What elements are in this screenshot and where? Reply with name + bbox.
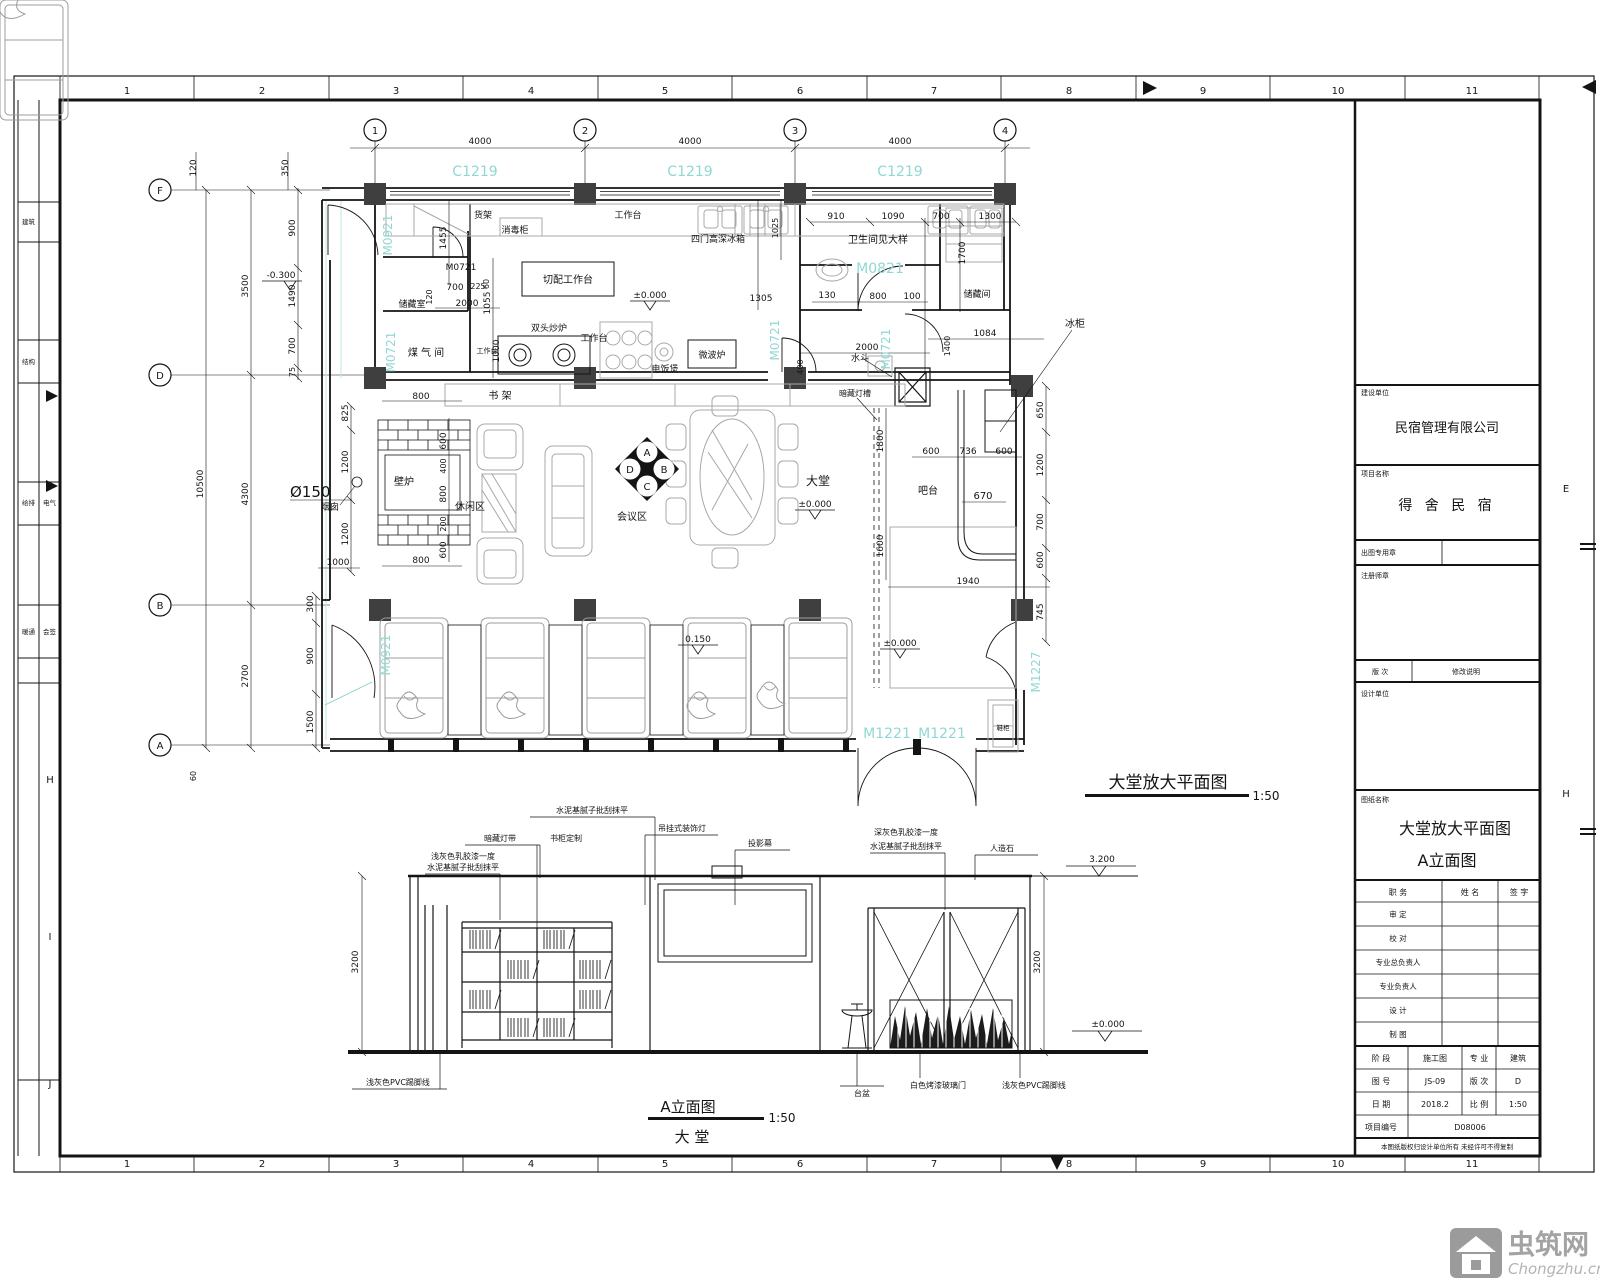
dim: 4000 — [679, 137, 702, 147]
label-rice-cooker: 电饭煲 — [651, 363, 678, 375]
dim: 1455 — [439, 227, 449, 250]
grid-col-2: 2 — [582, 126, 588, 137]
ruler-top-5: 5 — [662, 86, 668, 97]
tb-meta: 版 次 — [1470, 1076, 1489, 1086]
margin-letter: H — [46, 775, 54, 786]
dim: 2000 — [456, 299, 479, 309]
ruler-top-7: 7 — [931, 86, 937, 97]
dim: 1200 — [1036, 453, 1046, 476]
plan-columns — [364, 183, 1033, 621]
label-sink: 水斗 — [851, 352, 869, 364]
ruler-top-4: 4 — [528, 86, 534, 97]
dim: 1025 — [771, 218, 780, 238]
label-cabinet: 鞋柜 — [997, 723, 1011, 732]
ruler-top-9: 9 — [1200, 86, 1206, 97]
tb-meta: 施工图 — [1423, 1053, 1447, 1063]
dim: 1500 — [306, 710, 316, 733]
ruler-bot-11: 11 — [1466, 1159, 1479, 1170]
watermark: 虫筑网 Chongzhu.cn — [1450, 1228, 1600, 1278]
ruler-numbers: 1 2 3 4 5 6 7 8 9 10 11 1 2 3 4 5 6 7 8 … — [22, 86, 1570, 1170]
dim: 1600 — [876, 534, 886, 557]
dim: 1400 — [943, 336, 952, 356]
label-chimney: 烟囱 — [321, 501, 339, 513]
elev-note: 浅灰色乳胶漆一度 — [431, 851, 495, 861]
dim: 700 — [446, 283, 463, 293]
tb-meta: 建筑 — [1510, 1053, 1526, 1063]
elev-ref-A: A — [644, 448, 651, 459]
dim: 600 — [922, 447, 939, 457]
dim: 2700 — [241, 664, 251, 687]
elev-note: 浅灰色PVC踢脚线 — [1002, 1080, 1066, 1090]
level-mark: 0.150 — [685, 635, 711, 645]
strip-label: 建筑 — [22, 217, 36, 226]
plan-title: 大堂放大平面图 1:50 — [1085, 773, 1279, 803]
label-bookshelf: 书 架 — [488, 390, 511, 402]
level-mark: ±0.000 — [633, 291, 667, 301]
dim: 1300 — [979, 212, 1002, 222]
dim: 1700 — [958, 241, 968, 264]
watermark-cn: 虫筑网 — [1508, 1229, 1589, 1261]
tb-rev-desc: 修改说明 — [1452, 667, 1480, 676]
label-bar: 吧台 — [918, 484, 938, 497]
grid-row-A: A — [157, 741, 164, 752]
dim: 75 — [288, 367, 297, 377]
door-tag: M1221 — [918, 726, 966, 742]
dim: 1490 — [288, 284, 298, 307]
booth-seating — [0, 0, 852, 738]
window-tag: C1219 — [667, 164, 712, 180]
ruler-bot-3: 3 — [393, 1159, 399, 1170]
margin-letter: J — [48, 1079, 52, 1090]
elev-note: 台盆 — [854, 1088, 870, 1098]
label-shelf: 货架 — [474, 209, 492, 221]
dim: 600 — [439, 541, 449, 558]
plan-dim-text: 4000 4000 4000 120 350 910 1090 700 1300… — [189, 137, 1046, 781]
label-leisure-area: 休闲区 — [455, 500, 485, 513]
window-tag: C1219 — [877, 164, 922, 180]
tb-meta: 比 例 — [1470, 1099, 1489, 1109]
ruler-top-11: 11 — [1466, 86, 1479, 97]
watermark-en: Chongzhu.cn — [1508, 1260, 1600, 1278]
elevation-drawing — [0, 0, 1148, 1089]
grid-col-4: 4 — [1002, 126, 1008, 137]
dim: 800 — [412, 392, 429, 402]
dim: 60 — [189, 771, 198, 781]
tb-client-label: 建设单位 — [1361, 388, 1389, 397]
tb-note: 本图纸版权归设计单位所有 未经许可不得复制 — [1381, 1142, 1514, 1151]
title-block — [1355, 100, 1540, 1156]
dim: 130 — [818, 291, 835, 301]
tb-meta: D08006 — [1454, 1123, 1486, 1132]
plan-title-text: 大堂放大平面图 — [1109, 773, 1228, 793]
dim: 1000 — [327, 558, 350, 568]
strip-label: 给排 — [22, 498, 36, 507]
label-light-cove: 暗藏灯槽 — [839, 388, 871, 398]
dim: 800 — [439, 485, 449, 502]
tb-meta: 1:50 — [1509, 1100, 1527, 1109]
dim: 900 — [306, 647, 316, 664]
ruler-top-1: 1 — [124, 86, 130, 97]
strip-label: 暖通 — [22, 627, 36, 636]
tb-project-label: 项目名称 — [1361, 469, 1389, 478]
dim: 120 — [425, 289, 434, 304]
label-gas-room: 煤 气 间 — [408, 346, 444, 359]
dim: 1200 — [341, 522, 351, 545]
tb-design-label: 设计单位 — [1361, 689, 1389, 698]
ruler-top-8: 8 — [1066, 86, 1072, 97]
dim: 670 — [973, 491, 992, 502]
tb-meta: 专 业 — [1470, 1053, 1489, 1063]
elev-note: 吊挂式装饰灯 — [658, 823, 706, 833]
label-fireplace: 壁炉 — [394, 475, 414, 488]
label-storage2: 储藏间 — [963, 288, 990, 300]
ruler-bot-4: 4 — [528, 1159, 534, 1170]
tb-drawing1: 大堂放大平面图 — [1399, 819, 1511, 838]
plan-title-scale: 1:50 — [1253, 789, 1280, 803]
label-wok: 双头炒炉 — [531, 322, 567, 334]
margin-letter: I — [49, 932, 52, 943]
elev-note: 水泥基腻子批刮抹平 — [870, 841, 942, 851]
label-worktop: 工作台 — [614, 209, 641, 221]
elev-note: 水泥基腻子批刮抹平 — [556, 805, 628, 815]
tb-client: 民宿管理有限公司 — [1395, 420, 1499, 436]
tb-sig-h: 职 务 — [1389, 887, 1408, 897]
dim: 700 — [1036, 513, 1046, 530]
dim: 910 — [827, 212, 844, 222]
dim: 4000 — [889, 137, 912, 147]
label-worktop: 工作台 — [580, 332, 607, 344]
dim: 736 — [959, 447, 976, 457]
elev-note: 水泥基腻子批刮抹平 — [427, 862, 499, 872]
dim: 1800 — [876, 429, 886, 452]
ruler-top-6: 6 — [797, 86, 803, 97]
tb-meta: D — [1515, 1077, 1521, 1086]
grid-col-1: 1 — [372, 126, 378, 137]
label-toilet-note: 卫生间见大样 — [848, 233, 908, 246]
ruler-top-10: 10 — [1332, 86, 1345, 97]
ruler-bot-8: 8 — [1066, 1159, 1072, 1170]
elev-ref-D: D — [626, 465, 634, 476]
tb-sig-h: 姓 名 — [1461, 887, 1480, 897]
dim: 1305 — [750, 294, 773, 304]
tb-sig-row: 专业负责人 — [1379, 981, 1417, 991]
ruler-top-3: 3 — [393, 86, 399, 97]
grid-row-B: B — [157, 601, 164, 612]
elev-note: 人造石 — [990, 843, 1014, 853]
elev-note: 投影幕 — [748, 838, 772, 848]
elev-note: 暗藏灯带 — [484, 833, 516, 843]
title-block-text: 建设单位 民宿管理有限公司 项目名称 得 舍 民 宿 出图专用章 注册师章 版 … — [1361, 388, 1528, 1151]
dim: 600 — [439, 432, 449, 449]
dim: 350 — [281, 159, 291, 176]
dim: 225 — [470, 282, 485, 291]
grid-row-F: F — [157, 186, 163, 197]
door-tag: M1221 — [863, 726, 911, 742]
tb-meta: 阶 段 — [1372, 1053, 1391, 1063]
dim: 100 — [903, 292, 920, 302]
label-meeting-area: 会议区 — [617, 510, 647, 523]
tb-meta: JS-09 — [1424, 1077, 1446, 1086]
tb-sig-row: 校 对 — [1389, 933, 1407, 943]
dim: 3200 — [351, 950, 361, 973]
drawing-sheet: 1 2 3 4 5 6 7 8 9 10 11 1 2 3 4 5 6 7 8 … — [0, 0, 1600, 1280]
elev-ref-C: C — [644, 482, 651, 493]
dim: 10500 — [196, 469, 206, 498]
lobby-furniture — [352, 390, 1018, 752]
elevation-title-text: A立面图 — [660, 1098, 715, 1116]
level-mark: ±0.000 — [883, 639, 917, 649]
ruler-bot-2: 2 — [259, 1159, 265, 1170]
dim: 700 — [932, 212, 949, 222]
label-sterilizer: 消毒柜 — [501, 224, 528, 236]
tb-drawing-label: 图纸名称 — [1361, 795, 1389, 804]
elev-note: 深灰色乳胶漆一度 — [874, 827, 938, 837]
dim: 1940 — [957, 577, 980, 587]
tb-seal-label: 出图专用章 — [1361, 548, 1396, 557]
door-tag: M0721 — [768, 320, 782, 361]
level-mark: -0.300 — [266, 271, 295, 281]
elevation-subtitle: 大 堂 — [675, 1128, 710, 1146]
margin-letter: E — [1563, 484, 1569, 495]
ruler-top-2: 2 — [259, 86, 265, 97]
tb-sig-row: 制 图 — [1389, 1029, 1406, 1039]
door-tag: M0821 — [856, 261, 904, 277]
dim: 120 — [189, 159, 199, 176]
tb-reg-label: 注册师章 — [1361, 571, 1389, 580]
door-tag: M0921 — [379, 635, 393, 676]
chimney-diameter: Ø150 — [290, 483, 330, 501]
door-tag: M0721 — [446, 263, 477, 273]
dim: 400 — [439, 458, 448, 473]
tb-drawing2: A立面图 — [1418, 851, 1477, 870]
grid-col-3: 3 — [792, 126, 798, 137]
dim: 3500 — [241, 274, 251, 297]
strip-label: 结构 — [22, 357, 36, 366]
elev-note: 白色烤漆玻璃门 — [910, 1080, 966, 1090]
dim: 800 — [869, 292, 886, 302]
ruler-bot-1: 1 — [124, 1159, 130, 1170]
margin-letter: H — [1562, 789, 1570, 800]
dim: 400 — [796, 359, 805, 374]
strip-label: 电气 — [43, 498, 57, 507]
fold-marks — [46, 80, 1596, 1170]
tb-sig-row: 审 定 — [1389, 909, 1407, 919]
tb-project: 得 舍 民 宿 — [1398, 497, 1495, 514]
dim: 1055 — [483, 292, 493, 315]
label-fridge: 四门高深冰箱 — [691, 233, 745, 245]
dim: 3200 — [1033, 950, 1043, 973]
label-worktop: 工作台 — [477, 346, 498, 355]
elev-note: 浅灰色PVC踢脚线 — [366, 1077, 430, 1087]
elevation-texts: 浅灰色乳胶漆一度 水泥基腻子批刮抹平 暗藏灯带 书柜定制 水泥基腻子批刮抹平 吊… — [351, 805, 1125, 1146]
dim: 700 — [288, 337, 298, 354]
dim: 650 — [1036, 401, 1046, 418]
ruler-bot-5: 5 — [662, 1159, 668, 1170]
plan-opening-tags: C1219 C1219 C1219 M0921 M0721 M0721 M072… — [379, 164, 1043, 742]
dim: 825 — [341, 404, 351, 421]
label-storage: 储藏室 — [398, 298, 425, 310]
ruler-bot-10: 10 — [1332, 1159, 1345, 1170]
tb-sig-h: 签 字 — [1510, 887, 1529, 897]
dim: 200 — [439, 516, 448, 531]
elev-ref-B: B — [661, 465, 668, 476]
dim: 4000 — [469, 137, 492, 147]
dim: 800 — [412, 556, 429, 566]
elev-level-bottom: ±0.000 — [1091, 1020, 1125, 1030]
dim: 1084 — [974, 329, 997, 339]
ruler-bot-9: 9 — [1200, 1159, 1206, 1170]
tb-meta: 日 期 — [1372, 1100, 1391, 1109]
tb-sig-row: 设 计 — [1389, 1005, 1407, 1015]
grid-row-D: D — [156, 371, 164, 382]
tb-meta: 项目编号 — [1365, 1122, 1397, 1132]
label-freezer: 冰柜 — [1065, 317, 1085, 330]
tb-sig-row: 专业总负责人 — [1376, 957, 1421, 967]
dim: 1090 — [882, 212, 905, 222]
elev-level-top: 3.200 — [1089, 855, 1115, 865]
door-tag: M0921 — [381, 215, 395, 256]
tb-rev-label: 版 次 — [1372, 667, 1388, 676]
elevation-title-scale: 1:50 — [769, 1111, 796, 1125]
elevation-reference-symbol: A B C D — [615, 437, 679, 501]
dim: 600 — [995, 447, 1012, 457]
door-tag: M0721 — [879, 329, 893, 370]
dim: 600 — [1036, 551, 1046, 568]
tb-meta: 图 号 — [1372, 1077, 1391, 1086]
dim: 2000 — [856, 343, 879, 353]
dim: 4300 — [241, 482, 251, 505]
label-lobby: 大堂 — [806, 474, 830, 488]
ruler-bot-6: 6 — [797, 1159, 803, 1170]
door-tag: M1227 — [1029, 652, 1043, 693]
level-mark: ±0.000 — [798, 500, 832, 510]
dim: 1200 — [341, 450, 351, 473]
label-microwave: 微波炉 — [698, 349, 725, 361]
dim: 900 — [288, 219, 298, 236]
strip-label: 会签 — [43, 627, 57, 636]
elev-note: 书柜定制 — [550, 833, 582, 843]
dim: 745 — [1036, 603, 1046, 620]
dim: 300 — [306, 595, 316, 612]
ruler-bot-7: 7 — [931, 1159, 937, 1170]
tb-meta: 2018.2 — [1421, 1100, 1449, 1109]
label-prep-table: 切配工作台 — [543, 273, 593, 286]
window-tag: C1219 — [452, 164, 497, 180]
door-tag: M0721 — [384, 332, 398, 373]
